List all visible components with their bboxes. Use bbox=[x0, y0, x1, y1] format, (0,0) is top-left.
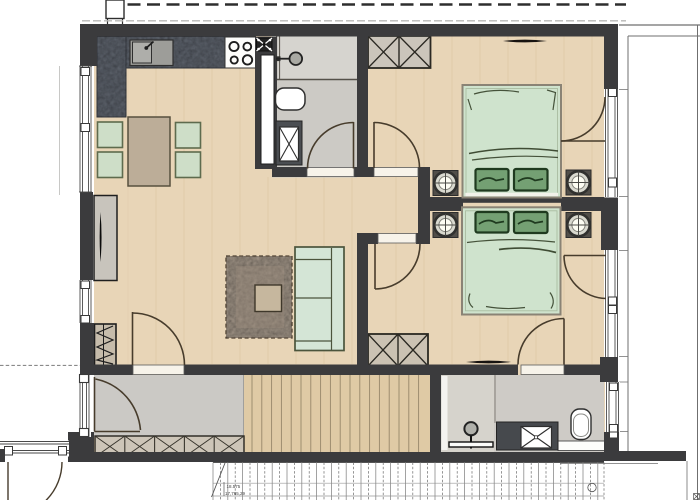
svg-text:18.575: 18.575 bbox=[227, 484, 241, 489]
svg-text:17,765,29: 17,765,29 bbox=[225, 491, 246, 496]
